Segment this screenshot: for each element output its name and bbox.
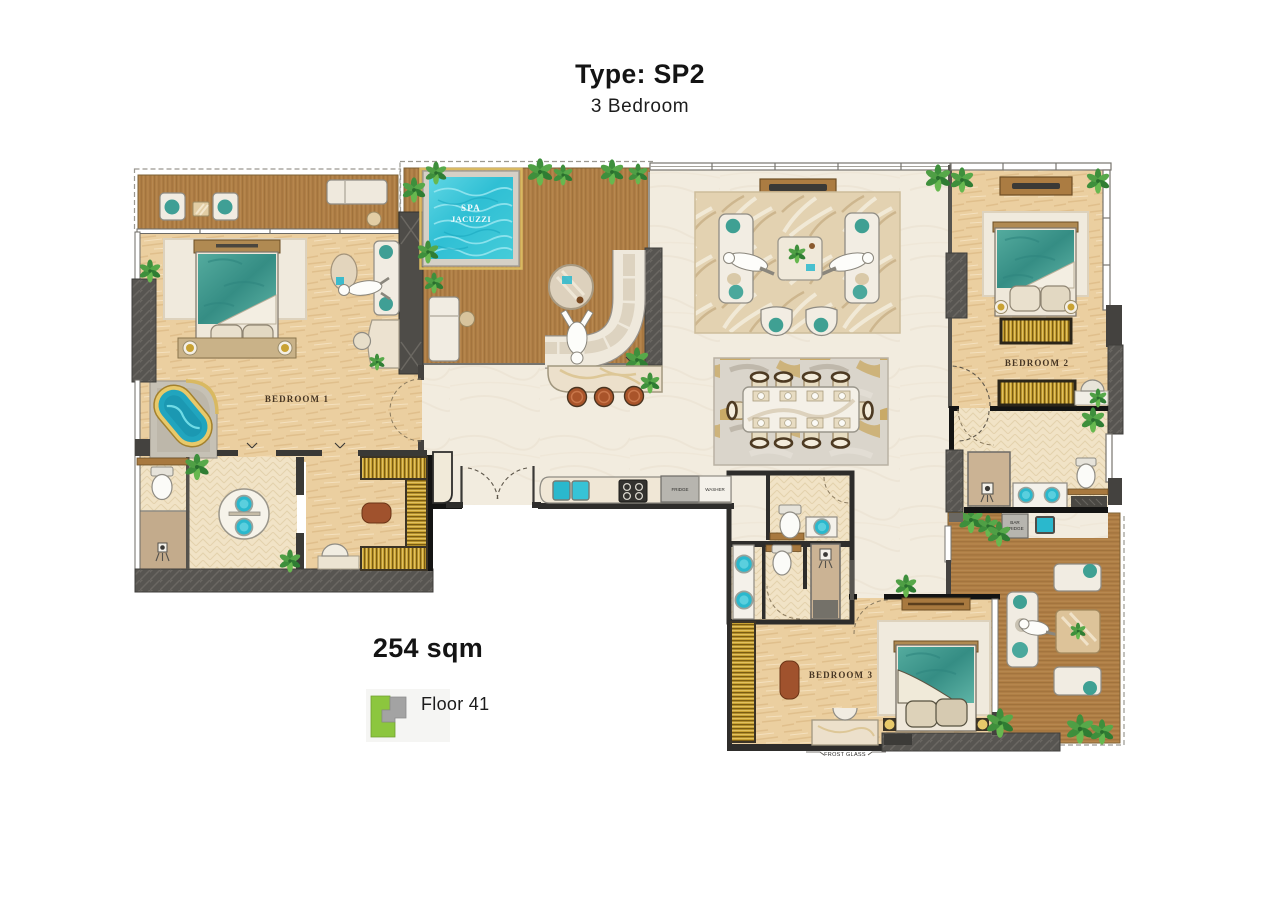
svg-text:BEDROOM 3: BEDROOM 3 <box>809 670 873 680</box>
svg-text:SPA: SPA <box>461 203 481 213</box>
svg-text:Floor 41: Floor 41 <box>421 694 489 714</box>
svg-text:BAR: BAR <box>1010 520 1020 525</box>
svg-text:JACUZZI: JACUZZI <box>451 214 491 224</box>
svg-text:FRIDGE: FRIDGE <box>671 487 688 492</box>
svg-text:254 sqm: 254 sqm <box>373 633 483 663</box>
svg-text:BEDROOM 1: BEDROOM 1 <box>265 394 329 404</box>
svg-text:FROST GLASS: FROST GLASS <box>824 752 866 758</box>
svg-text:3 Bedroom: 3 Bedroom <box>591 96 689 117</box>
svg-text:Type: SP2: Type: SP2 <box>575 59 705 89</box>
svg-text:WASHER: WASHER <box>705 487 725 492</box>
svg-text:BEDROOM 2: BEDROOM 2 <box>1005 358 1069 368</box>
